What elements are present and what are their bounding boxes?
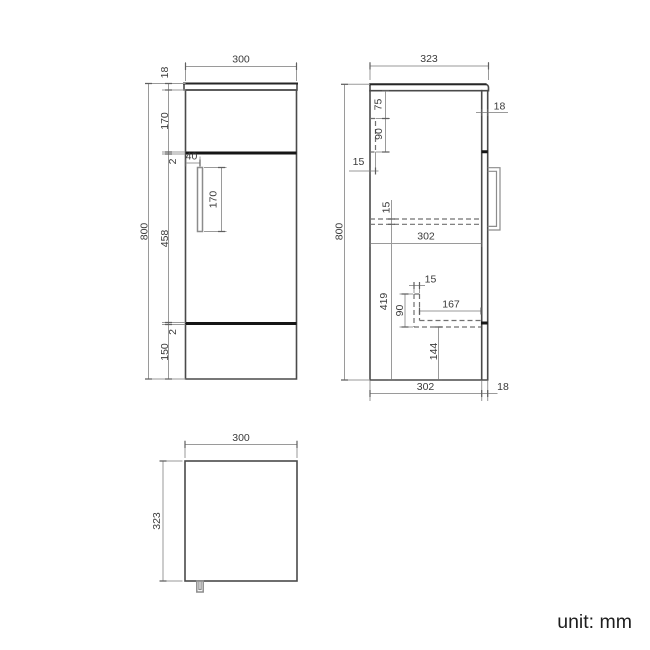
side-view	[370, 84, 500, 380]
top-view-dimensions: 300 323	[151, 432, 297, 581]
dim-side-bracket-offset: 75	[373, 99, 385, 111]
dim-side-lower-section: 419	[378, 293, 390, 311]
dim-front-gap-upper: 2	[167, 158, 179, 164]
dim-side-pipe-clearance: 144	[428, 343, 440, 361]
dim-front-handle-length: 170	[208, 191, 220, 209]
top-view-handle	[197, 581, 203, 592]
dim-front-width: 300	[232, 54, 250, 66]
dim-front-plinth: 150	[159, 343, 171, 361]
front-view-dimensions: 300 18 170 2 458 2 150 800 40 170	[139, 54, 297, 380]
dim-side-pipe-width: 15	[425, 274, 437, 286]
dim-front-door-height: 458	[159, 230, 171, 248]
drawing-canvas: 300 18 170 2 458 2 150 800 40 170	[0, 0, 650, 650]
dim-front-total-height: 800	[139, 223, 151, 241]
dim-side-pipe-length: 167	[442, 299, 460, 311]
dim-side-shelf-thickness: 15	[381, 202, 393, 214]
front-view	[184, 84, 297, 380]
dim-side-door-thickness-top: 18	[494, 101, 506, 113]
top-view-outline	[185, 461, 297, 581]
dim-side-pipe-height: 90	[394, 305, 406, 317]
dim-front-counter-thickness: 18	[159, 67, 171, 79]
dim-top-width: 300	[232, 432, 250, 444]
dim-side-bracket-depth: 15	[353, 156, 365, 168]
dim-side-door-thickness-bottom: 18	[497, 381, 509, 393]
dim-side-total-height: 800	[334, 223, 346, 241]
dim-front-gap-lower: 2	[167, 329, 179, 335]
dim-side-depth: 323	[420, 53, 438, 65]
dim-front-upper-panel: 170	[159, 112, 171, 130]
side-door-handle	[488, 168, 500, 230]
dim-side-interior-depth: 302	[417, 231, 435, 243]
technical-drawing-vanity-unit: 300 18 170 2 458 2 150 800 40 170	[0, 0, 650, 650]
side-shelf-hidden	[370, 219, 482, 224]
dim-side-depth-bottom: 302	[417, 381, 435, 393]
dim-front-handle-offset: 40	[186, 151, 198, 163]
front-door-handle	[198, 168, 203, 232]
unit-note: unit: mm	[557, 611, 632, 633]
front-carcass-outline	[186, 90, 297, 379]
side-view-dimensions: 323 800 18 75 90 15 15 302 419 15 90 167…	[334, 53, 509, 401]
dim-top-depth: 323	[151, 512, 163, 530]
dim-side-bracket-height: 90	[373, 128, 385, 140]
top-view	[185, 461, 297, 592]
